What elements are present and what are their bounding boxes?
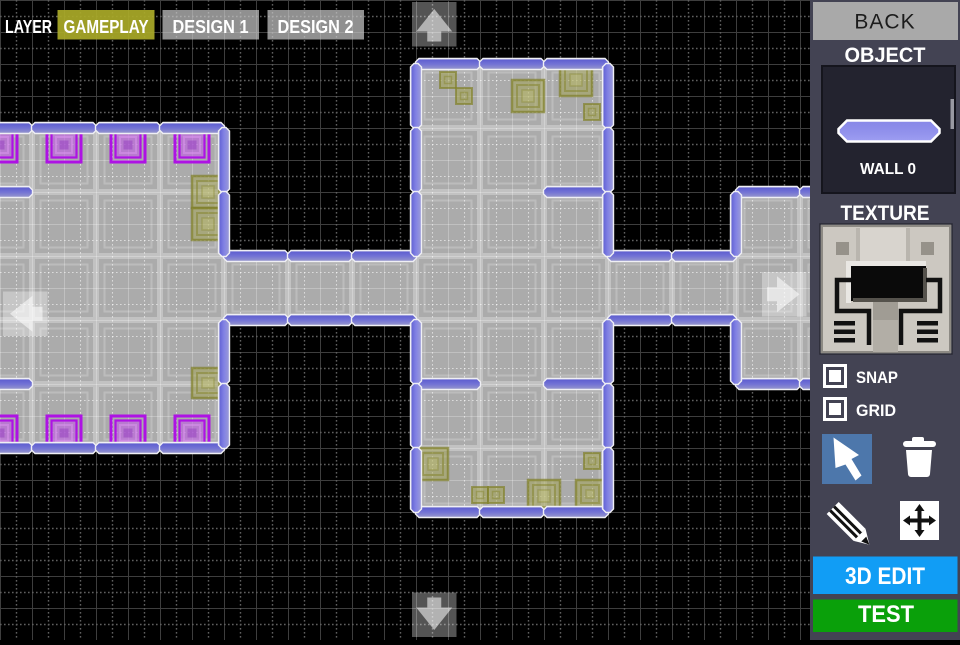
svg-text:SNAP: SNAP: [856, 368, 898, 387]
svg-text:TEST: TEST: [858, 601, 914, 628]
svg-text:OBJECT: OBJECT: [845, 44, 926, 67]
svg-text:GRID: GRID: [856, 401, 896, 420]
svg-text:WALL 0: WALL 0: [860, 161, 916, 178]
svg-text:LAYER: LAYER: [5, 17, 52, 37]
svg-text:GAMEPLAY: GAMEPLAY: [64, 17, 149, 37]
svg-text:3D EDIT: 3D EDIT: [845, 563, 925, 590]
svg-text:TEXTURE: TEXTURE: [841, 202, 930, 225]
svg-text:DESIGN 2: DESIGN 2: [278, 17, 354, 37]
svg-text:BACK: BACK: [854, 11, 915, 34]
svg-text:DESIGN 1: DESIGN 1: [173, 17, 249, 37]
